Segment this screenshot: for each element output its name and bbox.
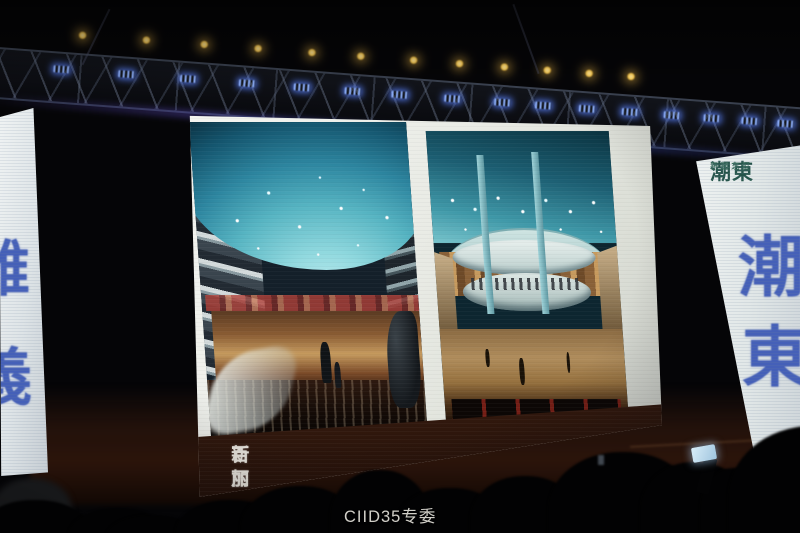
amber-spotlight-icon [584, 69, 594, 78]
blue-led-fixture-icon [180, 75, 196, 83]
amber-spotlight-icon [307, 48, 317, 57]
amber-spotlight-icon [142, 36, 152, 45]
blue-led-fixture-icon [622, 108, 638, 116]
rigging-cable [512, 4, 539, 74]
amber-spotlight-icon [253, 44, 263, 53]
blue-led-fixture-icon [494, 98, 510, 106]
amber-spotlight-icon [455, 59, 465, 68]
amber-spotlight-icon [78, 31, 88, 40]
stage-photo-frame: 雅 義 潮東 新起东汇 东道之仪 潮 東 [0, 0, 800, 533]
blue-led-fixture-icon [703, 114, 719, 122]
amber-spotlight-icon [542, 66, 552, 75]
blue-led-fixture-icon [391, 91, 407, 99]
blue-led-fixture-icon [53, 65, 69, 73]
blue-led-fixture-icon [444, 95, 460, 103]
blue-led-fixture-icon [535, 101, 551, 109]
blue-led-fixture-icon [664, 111, 680, 119]
blue-led-fixture-icon [294, 83, 310, 91]
blue-led-fixture-icon [239, 79, 255, 87]
amber-spotlight-icon [626, 72, 636, 81]
blue-led-fixture-icon [118, 70, 134, 78]
blue-led-fixture-icon [344, 87, 360, 95]
amber-spotlight-icon [199, 40, 209, 49]
blue-led-fixture-icon [777, 120, 793, 128]
left-led-banner: 雅 義 [0, 108, 48, 476]
amber-spotlight-icon [500, 63, 510, 72]
dim-phone-glow [598, 455, 604, 465]
photo-watermark: CIID35专委 [344, 503, 436, 527]
led-pixel-texture [0, 108, 48, 476]
blue-led-fixture-icon [741, 117, 757, 125]
blue-led-fixture-icon [579, 105, 595, 113]
amber-spotlight-icon [356, 52, 366, 61]
amber-spotlight-icon [409, 56, 419, 65]
